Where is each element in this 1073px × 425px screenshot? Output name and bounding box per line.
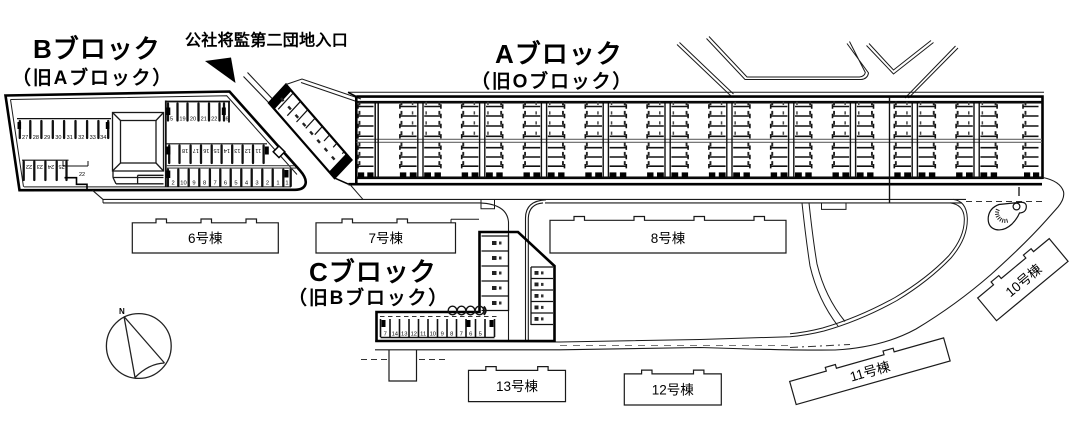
svg-text:20: 20 [190, 117, 196, 123]
svg-text:30: 30 [55, 135, 61, 141]
svg-text:8: 8 [450, 332, 453, 338]
svg-text:10: 10 [430, 332, 436, 338]
svg-text:8号棟: 8号棟 [651, 231, 686, 246]
svg-text:N: N [119, 307, 125, 316]
svg-text:6: 6 [224, 181, 227, 187]
svg-text:5: 5 [170, 117, 173, 123]
svg-text:13: 13 [401, 332, 407, 338]
svg-text:9: 9 [192, 181, 195, 187]
svg-text:23: 23 [37, 163, 43, 169]
svg-text:5: 5 [479, 332, 482, 338]
svg-text:11: 11 [255, 147, 261, 153]
svg-text:7: 7 [460, 332, 463, 338]
svg-text:17: 17 [193, 147, 199, 153]
svg-text:13: 13 [234, 147, 240, 153]
svg-text:15: 15 [213, 147, 219, 153]
svg-text:33: 33 [90, 135, 96, 141]
svg-text:Cブロック: Cブロック [309, 257, 437, 287]
svg-text:7: 7 [384, 332, 387, 338]
svg-text:27: 27 [22, 135, 28, 141]
svg-text:22: 22 [79, 172, 85, 178]
svg-text:12: 12 [411, 332, 417, 338]
svg-text:11: 11 [420, 332, 426, 338]
svg-text:22: 22 [211, 117, 217, 123]
svg-text:5: 5 [234, 181, 237, 187]
svg-text:28: 28 [33, 135, 39, 141]
svg-text:Bブロック: Bブロック [33, 34, 161, 64]
svg-text:（旧Aブロック）: （旧Aブロック） [12, 66, 173, 89]
svg-text:10: 10 [180, 181, 186, 187]
svg-text:7号棟: 7号棟 [368, 231, 403, 246]
svg-text:34: 34 [100, 135, 106, 141]
svg-text:12: 12 [245, 147, 251, 153]
svg-text:9: 9 [441, 332, 444, 338]
svg-text:19: 19 [179, 117, 185, 123]
svg-text:（旧Oブロック）: （旧Oブロック） [471, 70, 633, 93]
svg-text:14: 14 [392, 332, 399, 338]
svg-text:3: 3 [255, 181, 258, 187]
svg-text:6号棟: 6号棟 [188, 231, 223, 246]
svg-text:Aブロック: Aブロック [495, 39, 623, 69]
svg-text:22: 22 [26, 163, 32, 169]
svg-text:（旧Bブロック）: （旧Bブロック） [288, 286, 449, 309]
svg-text:8: 8 [203, 181, 206, 187]
svg-text:24: 24 [48, 163, 54, 169]
svg-text:32: 32 [78, 135, 84, 141]
svg-text:18: 18 [182, 147, 188, 153]
svg-text:16: 16 [203, 147, 209, 153]
svg-text:公社将監第二団地入口: 公社将監第二団地入口 [185, 31, 348, 50]
svg-text:7: 7 [213, 181, 216, 187]
svg-text:31: 31 [67, 135, 73, 141]
svg-text:12号棟: 12号棟 [652, 382, 695, 397]
svg-text:6: 6 [469, 332, 472, 338]
svg-text:13号棟: 13号棟 [496, 379, 539, 394]
svg-text:21: 21 [201, 117, 207, 123]
svg-text:14: 14 [224, 147, 230, 153]
svg-text:6: 6 [225, 117, 228, 123]
svg-text:1: 1 [276, 181, 279, 187]
svg-text:1: 1 [285, 181, 288, 187]
svg-text:2: 2 [266, 181, 269, 187]
svg-text:29: 29 [44, 135, 50, 141]
svg-text:2: 2 [171, 181, 174, 187]
